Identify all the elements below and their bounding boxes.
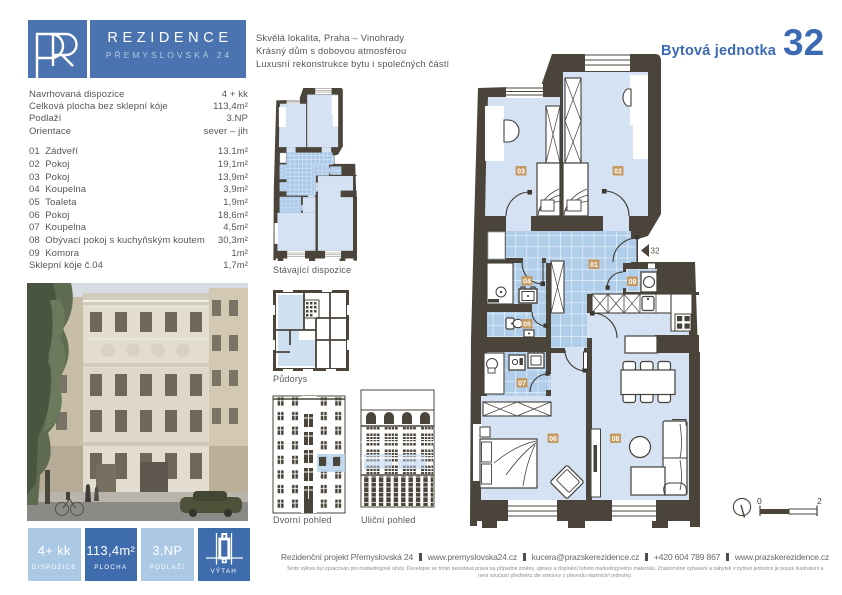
svg-text:08: 08 — [612, 436, 620, 443]
svg-text:32: 32 — [651, 247, 660, 256]
svg-text:01: 01 — [590, 262, 598, 269]
svg-text:06: 06 — [549, 436, 557, 443]
svg-text:02: 02 — [614, 168, 622, 175]
svg-text:03: 03 — [517, 168, 525, 175]
svg-text:0: 0 — [757, 496, 762, 506]
svg-text:09: 09 — [629, 279, 637, 286]
svg-text:07: 07 — [518, 380, 526, 387]
svg-text:05: 05 — [523, 321, 531, 328]
svg-text:2: 2 — [817, 496, 822, 506]
svg-text:04: 04 — [523, 278, 531, 285]
